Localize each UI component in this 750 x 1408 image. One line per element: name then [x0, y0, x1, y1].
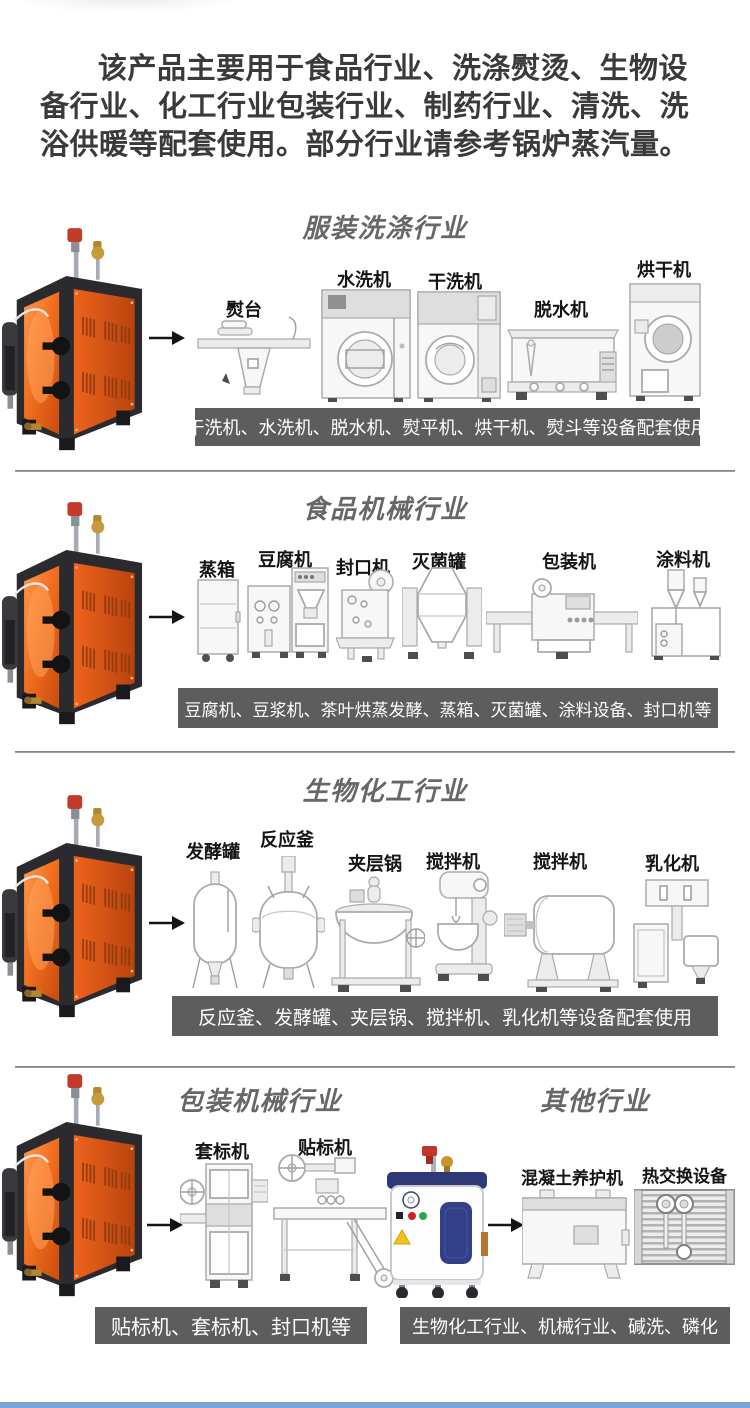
caption-text: 反应釜、发酵罐、夹层锅、搅拌机、乳化机等设备配套使用: [198, 1003, 692, 1030]
steam-cabinet-illustration: [196, 576, 242, 662]
machine-label: 包装机: [542, 548, 596, 574]
ironing-table-illustration: [196, 315, 316, 400]
right-arrow-icon: [148, 608, 186, 626]
section-title: 服装洗涤行业: [285, 208, 485, 245]
right-arrow-icon: [146, 1216, 184, 1234]
section-divider: [15, 470, 735, 472]
machine-label: 搅拌机: [533, 848, 587, 874]
product-application-page: 该产品主要用于食品行业、洗涤熨烫、生物设备行业、化工行业包装行业、制药行业、清洗…: [0, 0, 750, 1408]
coating-machine-illustration: [648, 568, 724, 660]
section-title: 食品机械行业: [285, 489, 485, 526]
section-title: 包装机械行业: [172, 1081, 347, 1118]
caption-bar: 反应釜、发酵罐、夹层锅、搅拌机、乳化机等设备配套使用: [172, 996, 718, 1036]
section-title: 其他行业: [530, 1081, 660, 1118]
machine-label: 乳化机: [645, 850, 699, 876]
caption-bar: 干洗机、水洗机、脱水机、熨平机、烘干机、熨斗等设备配套使用: [195, 408, 700, 446]
caption-text: 生物化工行业、机械行业、碱洗、磷化: [412, 1313, 718, 1339]
steam-boiler-photo: [2, 795, 154, 1021]
bottom-accent-bar: [0, 1402, 750, 1408]
caption-bar: 生物化工行业、机械行业、碱洗、磷化: [400, 1307, 730, 1344]
steam-generator-photo: [385, 1146, 490, 1298]
dry-cleaning-machine-illustration: [416, 290, 502, 402]
concrete-curing-machine-illustration: [522, 1188, 630, 1284]
dehydrator-illustration: [504, 318, 622, 402]
jacketed-kettle-illustration: [330, 876, 425, 992]
top-shadow-decoration: [20, 0, 235, 12]
right-arrow-icon: [148, 329, 186, 347]
machine-label: 热交换设备: [642, 1162, 727, 1187]
washing-machine-illustration: [320, 288, 412, 402]
section-divider: [15, 751, 735, 753]
section-divider: [15, 1066, 735, 1068]
reactor-vessel-illustration: [252, 856, 325, 992]
caption-text: 干洗机、水洗机、脱水机、熨平机、烘干机、熨斗等设备配套使用: [187, 414, 709, 440]
tofu-machine-illustration: [246, 564, 330, 662]
caption-text: 豆腐机、豆浆机、茶叶烘蒸发酵、蒸箱、灭菌罐、涂料设备、封口机等: [185, 696, 712, 721]
fermentation-tank-illustration: [188, 868, 242, 992]
machine-label: 发酵罐: [186, 838, 240, 864]
packing-machine-illustration: [486, 578, 638, 660]
sleeve-labeling-machine-illustration: [180, 1156, 268, 1292]
labeling-machine-illustration: [272, 1152, 396, 1292]
right-arrow-icon: [487, 1216, 525, 1234]
machine-label: 反应釜: [260, 826, 314, 852]
machine-label: 混凝土养护机: [521, 1164, 623, 1189]
emulsifier-illustration: [632, 878, 722, 990]
section-title: 生物化工行业: [285, 771, 485, 808]
machine-label: 夹层锅: [348, 850, 402, 876]
sealing-machine-illustration: [336, 568, 398, 662]
planetary-mixer-illustration: [428, 868, 500, 992]
machine-label: 烘干机: [637, 256, 691, 282]
caption-bar: 豆腐机、豆浆机、茶叶烘蒸发酵、蒸箱、灭菌罐、涂料设备、封口机等: [178, 688, 718, 728]
horizontal-mixer-illustration: [504, 884, 624, 992]
heat-exchanger-illustration: [634, 1188, 738, 1268]
steam-boiler-photo: [2, 502, 154, 728]
intro-paragraph: 该产品主要用于食品行业、洗涤熨烫、生物设备行业、化工行业包装行业、制药行业、清洗…: [40, 50, 712, 164]
right-arrow-icon: [148, 914, 186, 932]
sterilizer-tank-illustration: [402, 566, 482, 662]
caption-bar: 贴标机、套标机、封口机等: [95, 1307, 367, 1344]
steam-boiler-photo: [2, 228, 154, 454]
dryer-machine-illustration: [628, 282, 702, 402]
steam-boiler-photo: [2, 1074, 154, 1300]
caption-text: 贴标机、套标机、封口机等: [111, 1311, 351, 1340]
